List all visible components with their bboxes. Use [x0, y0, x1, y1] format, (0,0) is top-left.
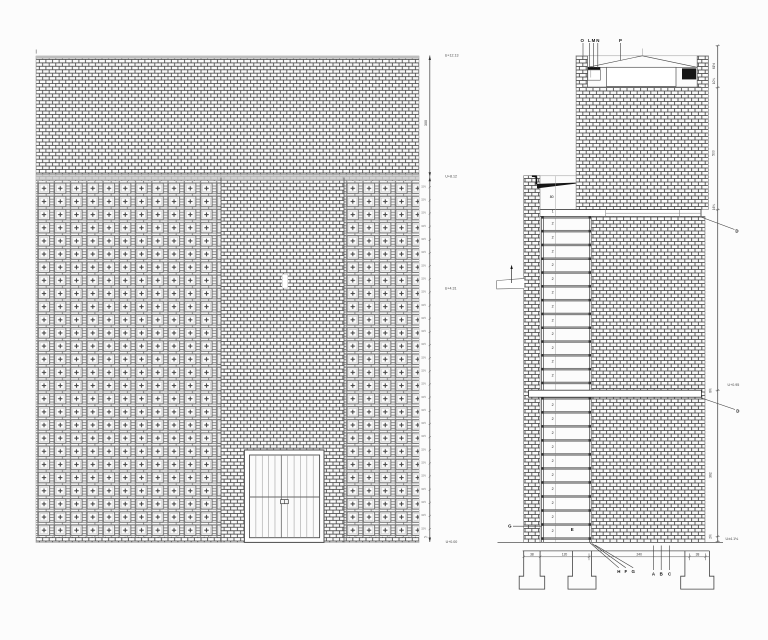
svg-text:32½: 32½: [421, 474, 426, 478]
svg-text:F: F: [624, 569, 627, 574]
svg-text:2½: 2½: [709, 534, 713, 539]
svg-text:2: 2: [552, 473, 554, 477]
svg-text:32½: 32½: [421, 237, 426, 241]
svg-text:2: 2: [552, 249, 554, 253]
svg-text:61½: 61½: [712, 63, 716, 70]
svg-text:2: 2: [552, 431, 554, 435]
svg-text:U+12.13: U+12.13: [445, 54, 459, 58]
svg-text:32½: 32½: [421, 395, 426, 399]
svg-text:32½: 32½: [421, 369, 426, 373]
svg-text:32½: 32½: [421, 513, 426, 517]
svg-text:1: 1: [552, 210, 554, 214]
svg-text:2: 2: [552, 403, 554, 407]
svg-text:U+0.00: U+0.00: [446, 540, 458, 544]
svg-text:2: 2: [552, 417, 554, 421]
svg-text:2: 2: [552, 374, 554, 378]
svg-text:L: L: [588, 38, 591, 43]
svg-text:U+4.31: U+4.31: [445, 286, 457, 290]
svg-text:32½: 32½: [421, 342, 426, 346]
svg-text:240: 240: [636, 553, 642, 557]
svg-text:2: 2: [552, 346, 554, 350]
svg-text:2: 2: [552, 459, 554, 463]
svg-text:10¾: 10¾: [712, 78, 716, 85]
svg-text:2: 2: [552, 487, 554, 491]
svg-text:2: 2: [552, 501, 554, 505]
svg-text:500: 500: [711, 150, 715, 156]
svg-text:O: O: [580, 38, 584, 43]
svg-text:32½: 32½: [421, 290, 426, 294]
svg-text:32½: 32½: [421, 526, 426, 530]
svg-text:2: 2: [552, 445, 554, 449]
svg-text:U±4.1⅛: U±4.1⅛: [726, 537, 739, 541]
svg-text:120: 120: [562, 553, 568, 557]
svg-text:N: N: [596, 38, 599, 43]
svg-text:8½: 8½: [709, 388, 713, 393]
svg-text:362: 362: [709, 472, 713, 478]
svg-text:32½: 32½: [421, 329, 426, 333]
svg-text:E: E: [571, 527, 574, 532]
svg-text:G: G: [631, 569, 635, 574]
svg-text:B: B: [660, 571, 663, 576]
svg-text:2: 2: [552, 305, 554, 309]
svg-text:32½: 32½: [421, 447, 426, 451]
svg-text:38: 38: [696, 553, 700, 557]
svg-text:M: M: [592, 38, 596, 43]
svg-text:H: H: [617, 569, 620, 574]
svg-text:2: 2: [552, 318, 554, 322]
svg-text:38: 38: [530, 553, 534, 557]
svg-text:2: 2: [552, 332, 554, 336]
svg-text:32½: 32½: [421, 184, 426, 188]
svg-text:2: 2: [552, 236, 554, 240]
svg-text:2: 2: [552, 291, 554, 295]
svg-text:300: 300: [424, 120, 428, 126]
svg-text:32½: 32½: [421, 382, 426, 386]
svg-text:D: D: [735, 228, 738, 233]
svg-text:32½: 32½: [421, 461, 426, 465]
svg-text:32½: 32½: [421, 434, 426, 438]
svg-text:2: 2: [552, 222, 554, 226]
svg-text:32½: 32½: [421, 355, 426, 359]
svg-text:2: 2: [552, 263, 554, 267]
svg-text:32½: 32½: [421, 224, 426, 228]
svg-text:32½: 32½: [421, 500, 426, 504]
svg-text:2: 2: [552, 529, 554, 533]
svg-text:32½: 32½: [421, 263, 426, 267]
svg-text:2: 2: [552, 277, 554, 281]
svg-text:D: D: [736, 408, 739, 413]
svg-text:U+0.95: U+0.95: [728, 383, 740, 387]
svg-text:32½: 32½: [421, 198, 426, 202]
svg-text:2½: 2½: [424, 535, 427, 539]
svg-text:32½: 32½: [421, 250, 426, 254]
svg-text:G: G: [508, 524, 512, 529]
svg-text:32½: 32½: [421, 487, 426, 491]
svg-text:80: 80: [550, 195, 554, 199]
svg-text:32½: 32½: [421, 276, 426, 280]
svg-text:32½: 32½: [421, 316, 426, 320]
svg-text:32½: 32½: [421, 408, 426, 412]
svg-text:2: 2: [552, 360, 554, 364]
svg-text:16¾: 16¾: [712, 204, 716, 211]
svg-text:32½: 32½: [421, 303, 426, 307]
svg-text:32½: 32½: [421, 211, 426, 215]
svg-text:2: 2: [552, 515, 554, 519]
svg-text:P: P: [619, 38, 622, 43]
svg-text:U+8.12: U+8.12: [445, 174, 457, 178]
svg-text:32½: 32½: [421, 421, 426, 425]
